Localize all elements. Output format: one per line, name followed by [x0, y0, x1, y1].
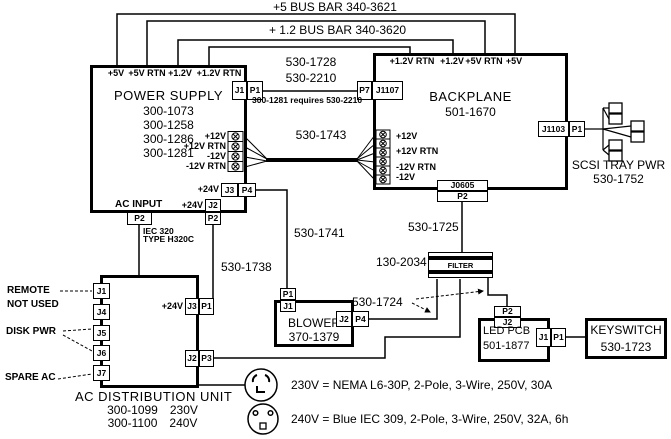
- ps-dc-pin-label: -12V RTN: [167, 162, 226, 171]
- ps-24v-bottom-label: +24V: [173, 201, 203, 210]
- ac-connector-p3: P3: [199, 350, 214, 367]
- bp-connector-p1: P1: [569, 121, 585, 137]
- cable-530-1728-label: 530-1728: [276, 56, 346, 69]
- bp-dc-pin-label: -12V: [396, 173, 415, 182]
- note-240v: 240V = Blue IEC 309, 2-Pole, 3-Wire, 250…: [291, 413, 568, 426]
- power-supply-model: 300-1258: [90, 119, 247, 132]
- ac-unit-model-pn: 300-1099: [107, 404, 158, 417]
- ac-unit-box: [100, 275, 199, 388]
- ac-port-j4: J4: [93, 304, 110, 320]
- disk-pwr-label: DISK PWR: [6, 327, 56, 338]
- led-pcb-title: LED PCB: [483, 326, 530, 338]
- ps-connector-j3: J3: [221, 183, 238, 197]
- cable-530-1725-label: 530-1725: [408, 221, 459, 234]
- ac-port-j7: J7: [93, 365, 110, 381]
- ps-connector-p2-24v: P2: [205, 212, 221, 225]
- led-connector-j1: J1: [536, 328, 551, 347]
- ac-connector-j3: J3: [185, 298, 199, 315]
- bp-connector-j1103: J1103: [538, 121, 569, 137]
- ps-connector-j1: J1: [232, 81, 247, 100]
- blower-model: 370-1379: [276, 331, 352, 344]
- note-230v: 230V = NEMA L6-30P, 2-Pole, 3-Wire, 250V…: [291, 379, 552, 392]
- cable-530-1743-label: 530-1743: [286, 129, 356, 142]
- ps-pin-label: +5V RTN: [128, 69, 166, 78]
- ac-unit-model-voltage: 240V: [169, 417, 197, 430]
- filter-box: FILTER: [428, 252, 493, 278]
- power-supply-model: 300-1073: [90, 105, 247, 118]
- keyswitch-model: 530-1723: [585, 341, 667, 354]
- blower-connector-j2: J2: [336, 311, 352, 327]
- scsi-tray-label: SCSI TRAY PWR: [566, 159, 671, 172]
- ps-ac-input-label: AC INPUT: [115, 200, 162, 211]
- filter-bar: [429, 256, 492, 260]
- ac-port-j6: J6: [93, 345, 110, 361]
- cable-530-1724-label: 530-1724: [352, 296, 403, 309]
- ac-connector-j2: J2: [185, 350, 199, 367]
- ac-unit-model-row: 300-1100 240V: [75, 417, 230, 430]
- ps-pin-label: +1.2V RTN: [194, 69, 244, 78]
- cable-530-1738-label: 530-1738: [221, 261, 272, 274]
- ac-unit-title: AC DISTRIBUTION UNIT: [75, 390, 230, 404]
- ac-24v-label: +24V: [152, 302, 183, 311]
- bus-bar-plus12-label: + 1.2 BUS BAR 340-3620: [235, 24, 440, 37]
- filter-bar: [429, 270, 492, 274]
- bp-connector-j0605: J0605: [437, 180, 488, 191]
- nema-plug-icon: [245, 369, 277, 401]
- ps-connector-j2: J2: [205, 199, 221, 212]
- ac-port-j1: J1: [93, 283, 110, 299]
- led-pcb-model: 501-1877: [483, 341, 530, 353]
- filter-part-label: 130-2034: [376, 256, 427, 269]
- ps-j3-24v-label: +24V: [186, 185, 219, 194]
- ps-connector-p2-ac: P2: [127, 212, 152, 225]
- bp-dc-pin-label: +12V RTN: [396, 147, 438, 156]
- bp-pin-label: +5V RTN: [465, 57, 503, 66]
- led-connector-p2: P2: [494, 306, 521, 317]
- bp-connector-p2: P2: [437, 191, 488, 202]
- power-supply-title: POWER SUPPLY: [90, 89, 247, 103]
- iec-plug-icon: [248, 404, 278, 434]
- cable-1281-note: 300-1281 requires 530-2210: [252, 96, 362, 105]
- not-used-label: NOT USED: [7, 300, 59, 311]
- ps-connector-p4: P4: [238, 183, 256, 197]
- scsi-tray-part: 530-1752: [566, 173, 671, 186]
- cable-530-2210-label: 530-2210: [276, 72, 346, 85]
- ac-unit-model-row: 300-1099 230V: [75, 404, 230, 417]
- spare-ac-label: SPARE AC: [5, 373, 56, 384]
- bp-pin-label: +1.2V: [437, 57, 467, 66]
- remote-label: REMOTE: [7, 286, 50, 297]
- keyswitch-title: KEYSWITCH: [585, 324, 667, 337]
- bp-pin-label: +1.2V RTN: [387, 57, 437, 66]
- ac-unit-model-pn: 300-1100: [108, 417, 158, 430]
- bus-bar-plus5-label: +5 BUS BAR 340-3621: [230, 1, 440, 14]
- wiring-diagram: +5 BUS BAR 340-3621 + 1.2 BUS BAR 340-36…: [0, 0, 671, 439]
- bp-connector-j1107: J1107: [372, 81, 403, 100]
- filter-label: FILTER: [429, 261, 492, 270]
- ps-pin-label: +1.2V: [166, 69, 194, 78]
- backplane-model: 501-1670: [373, 106, 568, 119]
- bp-dc-pin-label: +12V: [396, 132, 417, 141]
- ac-unit-model-voltage: 230V: [170, 404, 198, 417]
- ps-pin-label: +5V: [104, 69, 128, 78]
- blower-connector-p4: P4: [352, 311, 369, 327]
- led-connector-p1: P1: [551, 328, 566, 347]
- ac-port-j5: J5: [93, 325, 110, 341]
- blower-connector-p1: P1: [280, 288, 296, 300]
- bp-pin-label: +5V: [502, 57, 526, 66]
- blower-connector-j1: J1: [280, 300, 296, 312]
- ac-connector-p1: P1: [199, 298, 214, 315]
- cable-530-1741-label: 530-1741: [294, 227, 345, 240]
- ps-iec-note-line2: TYPE H320C: [143, 235, 194, 244]
- scsi-fanout-wires: [584, 108, 631, 155]
